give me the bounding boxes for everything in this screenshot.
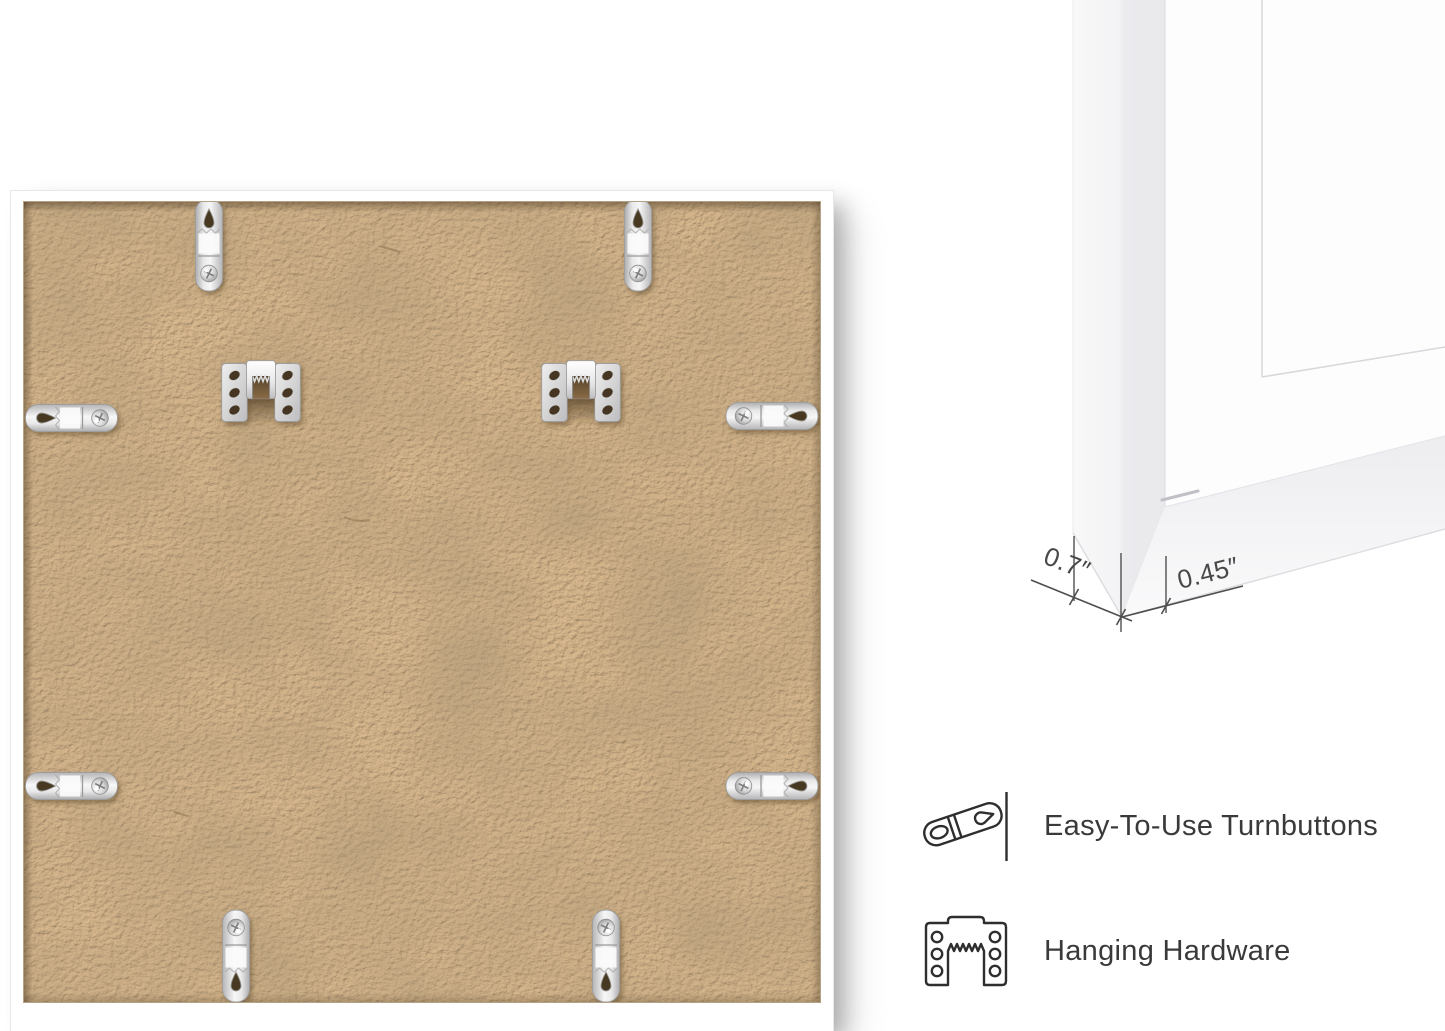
corner-closeup-art: 0.7″ 0.45″ — [1020, 0, 1445, 660]
feature-list: Easy-To-Use Turnbuttons Hanging Hardware — [921, 789, 1378, 987]
seam-shadow-top — [24, 202, 820, 212]
sawtooth-hanger-right — [542, 361, 621, 422]
feature-label-turnbuttons: Easy-To-Use Turnbuttons — [1044, 810, 1378, 843]
turnbutton-tab-left-lower — [26, 773, 118, 800]
frame-front-face — [1165, 0, 1445, 507]
seam-shadow-bottom — [24, 993, 820, 1002]
product-image: 0.7″ 0.45″ Easy-To-Use Turnbuttons — [0, 0, 1445, 1031]
turnbutton-icon — [921, 789, 1009, 863]
turnbutton-tab-right-lower — [726, 773, 818, 800]
turnbutton-tab-left-upper — [26, 405, 118, 432]
sawtooth-hanger-left — [222, 361, 301, 422]
mdf-backing-art — [24, 202, 820, 1002]
frame-side-face — [1073, 0, 1165, 617]
turnbutton-tab-bottom-right — [593, 910, 620, 1002]
feature-label-hanging: Hanging Hardware — [1044, 935, 1291, 968]
turnbutton-tab-bottom-left — [223, 910, 250, 1002]
mdf-backing-board — [23, 201, 821, 1003]
seam-shadow-right — [811, 202, 820, 1002]
turnbutton-tab-top-left — [196, 202, 223, 291]
turnbutton-tab-right-upper — [726, 403, 818, 430]
feature-hanging-hardware: Hanging Hardware — [921, 915, 1378, 987]
seam-shadow-left — [24, 202, 33, 1002]
hanging-hardware-icon — [921, 915, 1009, 987]
feature-turnbuttons: Easy-To-Use Turnbuttons — [921, 789, 1378, 863]
mdf-specks — [24, 202, 820, 1002]
frame-corner-closeup: 0.7″ 0.45″ — [1020, 0, 1445, 660]
frame-back-photo — [10, 190, 834, 1031]
turnbutton-tab-top-right — [625, 202, 652, 291]
